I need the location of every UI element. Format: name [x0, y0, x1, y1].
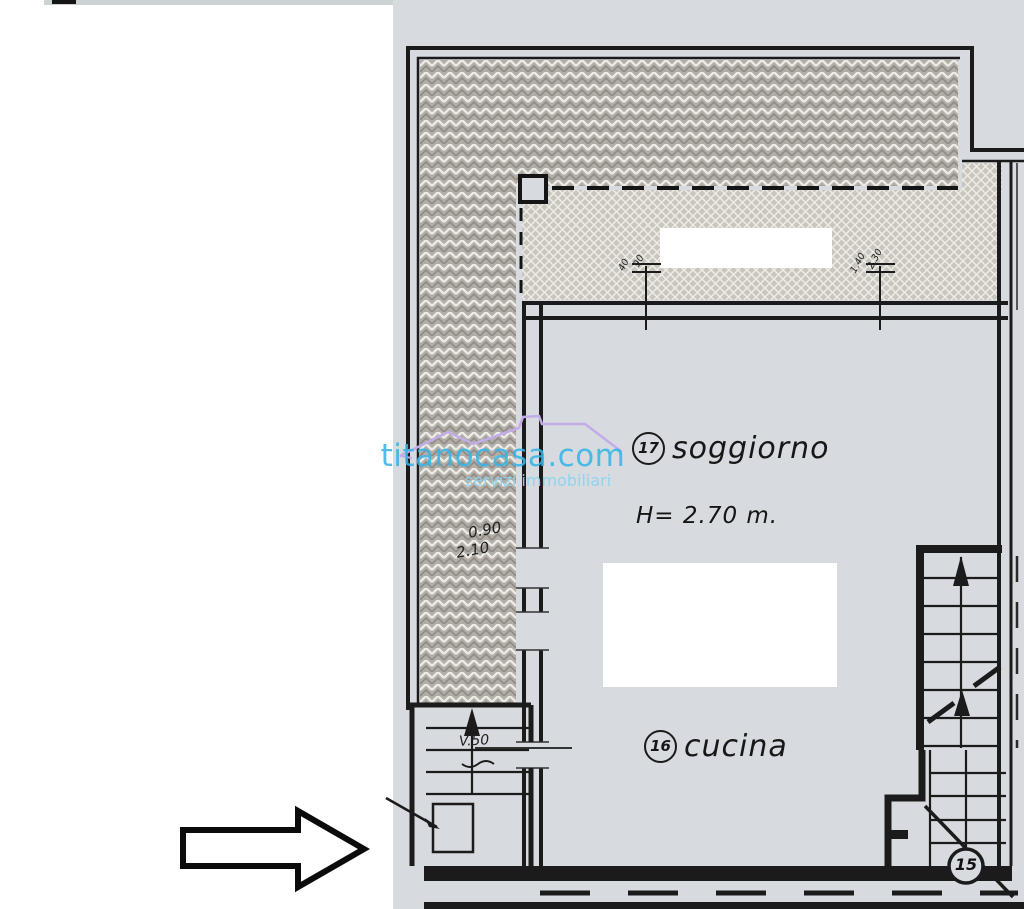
room-label-cucina: 16 cucina	[644, 729, 788, 764]
ceiling-height-note: H= 2.70 m.	[636, 503, 778, 529]
stair-up-arrow-icon	[953, 556, 969, 586]
room-number-badge: 17	[632, 432, 665, 465]
stairs-right	[886, 545, 1013, 897]
room-name: cucina	[684, 729, 788, 764]
watermark-brand: titanocasa.com	[376, 438, 630, 474]
redacted-box-top	[660, 228, 832, 268]
stair-up-arrow-icon	[954, 690, 970, 716]
entrance-direction-arrow-icon	[183, 811, 364, 887]
screenshot-root: titanocasa.com servizi immobiliari 17 so…	[0, 0, 1024, 909]
room-number-badge: 15	[952, 855, 980, 874]
redacted-box-room	[603, 563, 837, 687]
watermark-tagline: servizi immobiliari	[438, 471, 638, 490]
stair-note: V.50	[459, 732, 490, 750]
room-number-badge: 16	[644, 730, 677, 763]
room-name: soggiorno	[672, 431, 829, 466]
stairs-left	[386, 705, 572, 866]
room-label-soggiorno: 17 soggiorno	[632, 431, 829, 466]
